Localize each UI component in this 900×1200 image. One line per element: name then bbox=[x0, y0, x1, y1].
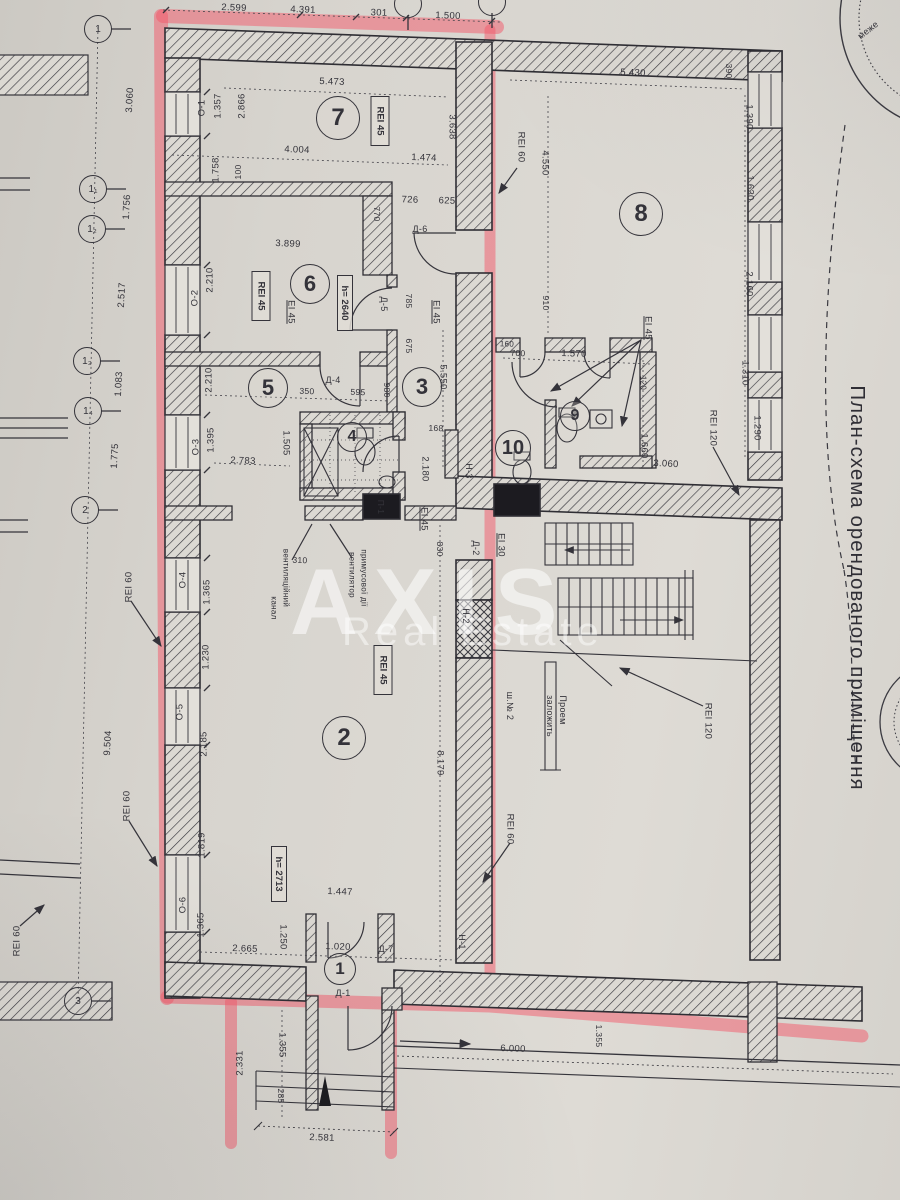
floor-plan-drawing bbox=[0, 0, 900, 1200]
dimension-ticks bbox=[91, 7, 495, 1001]
adjacent-building-fragments bbox=[0, 55, 112, 1020]
scanned-floor-plan-page: AXIS Real Estate План-схема орендованого… bbox=[0, 0, 900, 1200]
leader-arrows bbox=[20, 168, 739, 926]
staircase bbox=[492, 523, 757, 770]
entrance-steps bbox=[254, 1041, 900, 1136]
walls bbox=[165, 28, 862, 1110]
stamp-seal-arcs bbox=[826, 0, 900, 782]
